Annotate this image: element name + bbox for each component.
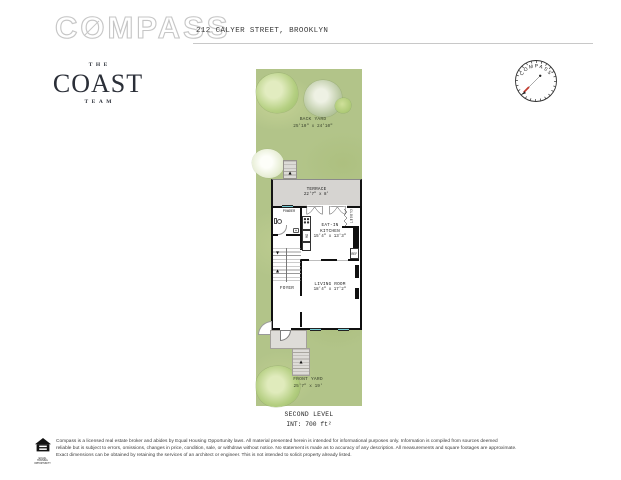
- tree-icon: [256, 73, 298, 113]
- front-yard-dims: 25'7" x 19': [268, 384, 348, 389]
- equal-housing-logo: EQUAL HOUSING OPPORTUNITY: [33, 438, 52, 465]
- terrace-label: TERRACE 22'7" x 8': [273, 180, 360, 198]
- living-room-name: LIVING ROOM: [306, 282, 354, 288]
- refrigerator-icon: REF: [350, 248, 359, 259]
- powder-room-label: POWDER: [279, 210, 299, 214]
- kitchen-dims: 15'4" x 13'3": [307, 235, 353, 240]
- up-arrow-icon: ▲: [284, 171, 296, 175]
- kitchen-label: EAT-IN KITCHEN 15'4" x 13'3": [307, 223, 353, 240]
- coast-team-bottom: TEAM: [48, 99, 148, 106]
- back-yard-name: BACK YARD: [273, 117, 353, 123]
- interior-wall: [300, 312, 302, 327]
- tree-icon: [304, 80, 342, 117]
- interior-wall: [302, 259, 309, 261]
- interior-wall: [348, 259, 359, 261]
- foyer-label: FOYER: [273, 286, 301, 292]
- disclaimer-line-3: Exact dimensions can be obtained by reta…: [56, 453, 593, 460]
- chimney-block: [355, 265, 359, 278]
- terrace-name: TERRACE: [273, 187, 360, 193]
- coast-team-top: THE: [48, 62, 148, 69]
- window: [282, 205, 293, 208]
- terrace-room: TERRACE 22'7" x 8': [271, 179, 362, 206]
- refrigerator-label: REF: [351, 252, 357, 256]
- floorplan-page: COMPASS 212 CALYER STREET, BROOKLYN THE …: [0, 0, 621, 480]
- backyard-steps: ▲: [283, 160, 297, 179]
- back-yard-dims: 25'10" x 24'10": [273, 124, 353, 129]
- sink-icon: [293, 228, 299, 233]
- doorway-lintel: [337, 260, 348, 261]
- staircase: ▼ ▲: [273, 248, 301, 282]
- equal-housing-caption: EQUAL HOUSING OPPORTUNITY: [33, 458, 52, 466]
- tree-icon: [335, 98, 351, 113]
- up-arrow-icon: ▲: [276, 269, 279, 273]
- back-yard-label: BACK YARD 25'10" x 24'10": [273, 117, 353, 129]
- level-name: SECOND LEVEL: [256, 411, 362, 418]
- window: [310, 328, 321, 331]
- front-yard-name: FRONT YARD: [268, 377, 348, 383]
- chimney-block: [353, 228, 359, 248]
- legal-disclaimer: Compass is a licensed real estate broker…: [56, 439, 593, 460]
- up-arrow-icon: ▲: [293, 360, 309, 364]
- compass-rose-icon: COMPASS: [512, 57, 560, 105]
- coast-team-name: COAST: [48, 70, 148, 97]
- kitchen-cabinet-icon: [302, 242, 311, 251]
- chimney-block: [355, 288, 359, 299]
- terrace-dims: 22'7" x 8': [273, 193, 360, 198]
- living-room-label: LIVING ROOM 18'4" x 17'2": [306, 282, 354, 293]
- living-room-dims: 18'4" x 17'2": [306, 288, 354, 293]
- bush-icon: [252, 149, 284, 178]
- coast-team-logo: THE COAST TEAM: [48, 62, 148, 105]
- equal-housing-house-icon: [35, 438, 51, 452]
- interior-area: INT: 700 ft²: [256, 421, 362, 428]
- house-outline: POWDER ▼ ▲ FOYER D: [271, 206, 362, 330]
- stoop-steps: ▲: [292, 348, 310, 376]
- front-yard-label: FRONT YARD 25'7" x 19': [268, 377, 348, 389]
- interior-wall: [321, 259, 337, 261]
- level-caption: SECOND LEVEL INT: 700 ft²: [256, 411, 362, 428]
- down-arrow-icon: ▼: [276, 251, 279, 255]
- window: [338, 328, 349, 331]
- disclaimer-line-2: reliable but is subject to errors, omiss…: [56, 446, 593, 453]
- french-doors-icon: [306, 206, 347, 217]
- doorway-lintel: [309, 260, 321, 261]
- header-divider: [193, 43, 593, 44]
- property-address-title: 212 CALYER STREET, BROOKLYN: [196, 27, 328, 35]
- toilet-bowl-icon: [277, 219, 282, 224]
- interior-wall: [286, 234, 300, 236]
- property-lot: BACK YARD 25'10" x 24'10" ▲ TERRACE 22'7…: [256, 69, 362, 406]
- kitchen-name-line2: KITCHEN: [307, 229, 353, 235]
- interior-wall: [273, 234, 278, 236]
- disclaimer-line-1: Compass is a licensed real estate broker…: [56, 439, 593, 446]
- foyer-name: FOYER: [273, 286, 301, 292]
